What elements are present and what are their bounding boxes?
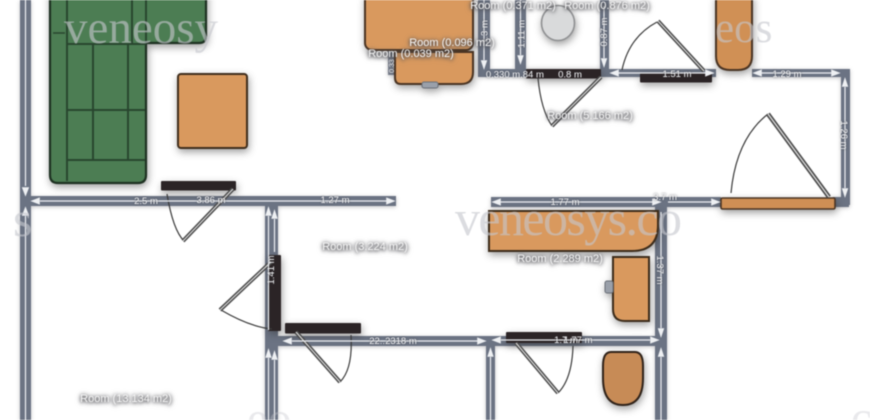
svg-text:Room (13.134 m2): Room (13.134 m2) [80, 393, 172, 405]
svg-text:Room (0.876 m2): Room (0.876 m2) [564, 0, 650, 12]
svg-text:Room (2.289 m2): Room (2.289 m2) [517, 253, 603, 265]
svg-text:Room (0.039 m2): Room (0.039 m2) [368, 48, 454, 60]
svg-text:22..2318 m: 22..2318 m [369, 336, 417, 347]
svg-text:1.29 m: 1.29 m [772, 69, 801, 80]
svg-text:.84 m: .84 m [520, 70, 544, 81]
svg-text:1.37 m: 1.37 m [654, 255, 665, 284]
svg-text:s: s [13, 191, 32, 247]
svg-text:eos: eos [715, 5, 772, 52]
svg-text:1.41 m: 1.41 m [266, 255, 277, 284]
svg-text:veneosys.co: veneosys.co [455, 190, 681, 246]
svg-text:3.86 m: 3.86 m [196, 195, 225, 206]
svg-text:eo: eo [247, 393, 291, 420]
svg-text:2.5 m: 2.5 m [134, 196, 158, 207]
svg-text:Room (0.371 m2): Room (0.371 m2) [470, 0, 556, 12]
svg-text:0.8 m: 0.8 m [558, 70, 582, 81]
svg-text:0.330 m: 0.330 m [486, 70, 520, 81]
svg-text:veneosy: veneosy [64, 2, 219, 54]
svg-text:0.87 m: 0.87 m [599, 17, 610, 46]
svg-text:1.26 m: 1.26 m [838, 120, 849, 149]
svg-text:1.27 m: 1.27 m [320, 195, 349, 206]
svg-text:Room (5.166 m2): Room (5.166 m2) [547, 110, 633, 122]
svg-text:Room (3.224 m2): Room (3.224 m2) [322, 241, 408, 253]
svg-text:co: co [851, 392, 870, 420]
svg-text:1.11 m: 1.11 m [517, 20, 528, 48]
svg-text:1.77 m: 1.77 m [563, 335, 592, 346]
svg-text:1.51 m: 1.51 m [662, 69, 691, 80]
svg-text:0.33: 0.33 [389, 59, 396, 73]
